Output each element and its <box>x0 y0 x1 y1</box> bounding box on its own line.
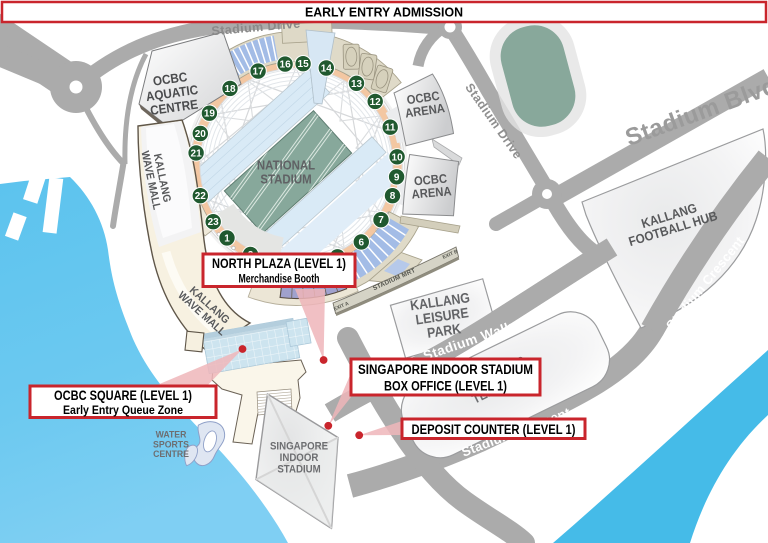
svg-text:16: 16 <box>280 60 292 71</box>
svg-text:CENTRE: CENTRE <box>153 449 189 459</box>
svg-text:WATER: WATER <box>156 429 187 439</box>
svg-text:14: 14 <box>321 64 333 75</box>
svg-text:11: 11 <box>385 123 396 134</box>
svg-text:19: 19 <box>204 109 216 120</box>
svg-text:1: 1 <box>224 233 230 244</box>
svg-text:INDOOR: INDOOR <box>280 452 319 464</box>
svg-text:EARLY ENTRY ADMISSION: EARLY ENTRY ADMISSION <box>305 6 463 20</box>
svg-text:STADIUM: STADIUM <box>260 172 311 187</box>
svg-text:20: 20 <box>195 129 207 140</box>
svg-text:STADIUM: STADIUM <box>277 464 320 476</box>
svg-text:DEPOSIT COUNTER (LEVEL 1): DEPOSIT COUNTER (LEVEL 1) <box>412 422 576 437</box>
svg-text:10: 10 <box>392 152 404 163</box>
svg-text:Early Entry Queue Zone: Early Entry Queue Zone <box>63 403 183 417</box>
svg-text:OCBC SQUARE (LEVEL 1): OCBC SQUARE (LEVEL 1) <box>54 388 192 403</box>
svg-text:15: 15 <box>298 59 310 70</box>
svg-text:13: 13 <box>351 79 363 90</box>
svg-text:23: 23 <box>208 217 220 228</box>
svg-text:Merchandise Booth: Merchandise Booth <box>239 272 320 286</box>
svg-text:NORTH PLAZA (LEVEL 1): NORTH PLAZA (LEVEL 1) <box>212 256 346 271</box>
svg-text:8: 8 <box>390 191 396 202</box>
svg-text:BOX OFFICE (LEVEL 1): BOX OFFICE (LEVEL 1) <box>384 378 507 393</box>
svg-text:12: 12 <box>370 97 382 108</box>
svg-text:22: 22 <box>195 191 207 202</box>
svg-text:17: 17 <box>253 67 265 78</box>
svg-text:SINGAPORE: SINGAPORE <box>270 441 328 453</box>
svg-text:NATIONAL: NATIONAL <box>257 158 316 173</box>
svg-text:9: 9 <box>394 172 400 183</box>
svg-text:21: 21 <box>191 148 203 159</box>
svg-text:7: 7 <box>378 215 384 226</box>
svg-text:SPORTS: SPORTS <box>153 439 189 449</box>
svg-text:6: 6 <box>359 237 365 248</box>
svg-text:SINGAPORE INDOOR STADIUM: SINGAPORE INDOOR STADIUM <box>358 362 533 377</box>
svg-text:18: 18 <box>224 84 236 95</box>
